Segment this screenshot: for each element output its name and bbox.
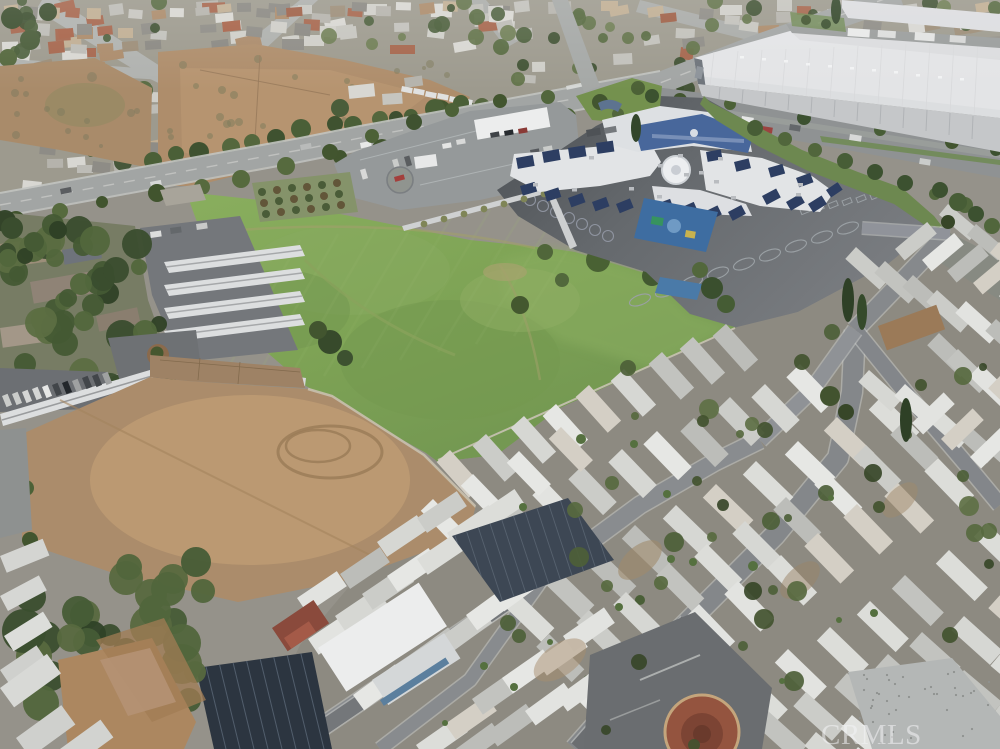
svg-text:CRMLS: CRMLS <box>821 719 922 749</box>
